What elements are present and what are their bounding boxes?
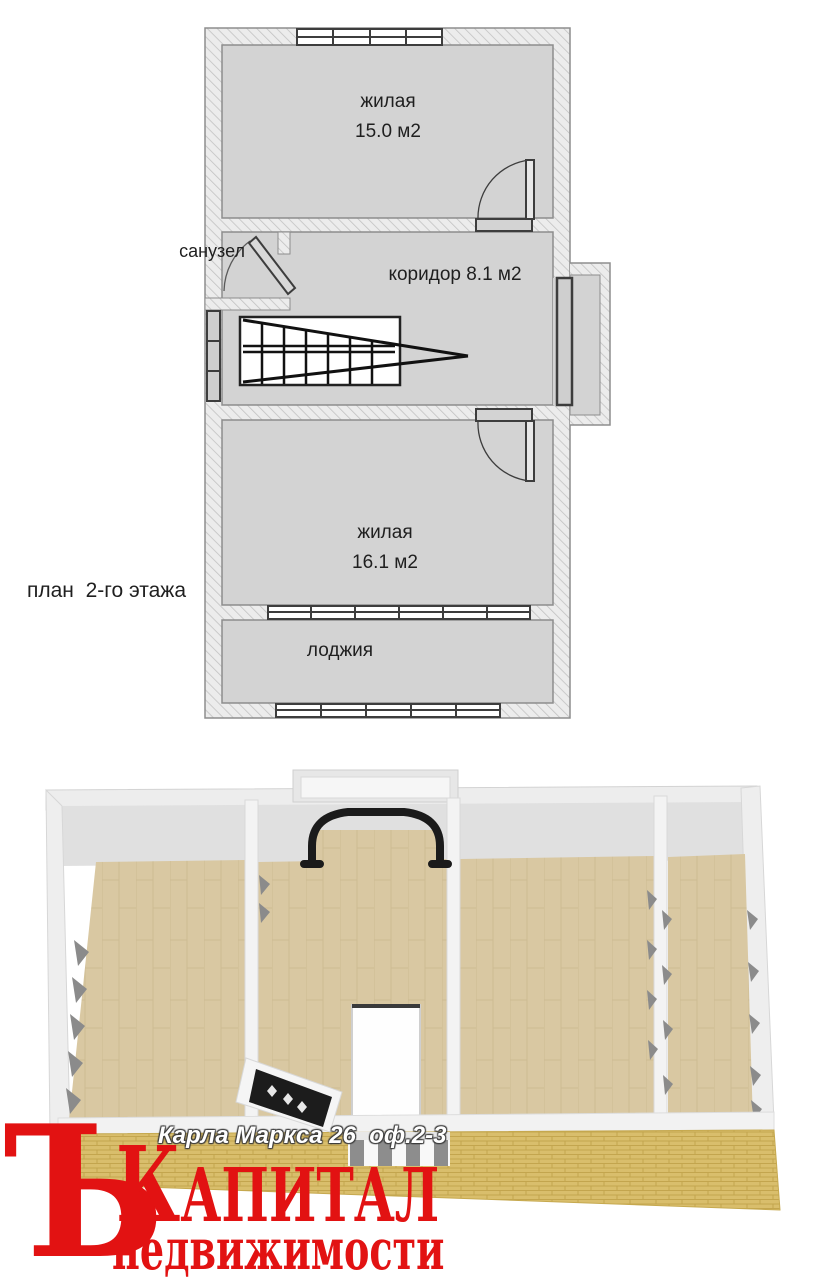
window-loggia-bottom xyxy=(276,704,500,717)
bathroom-label: санузел xyxy=(179,241,245,261)
loggia-label: лоджия xyxy=(307,640,373,661)
window-corridor-left xyxy=(207,311,220,401)
room-top-area: 15.0 м2 xyxy=(355,121,421,142)
window-top xyxy=(297,29,442,45)
room-bottom-area: 16.1 м2 xyxy=(352,552,418,573)
logo-subtitle: недвижимости xyxy=(112,1222,444,1278)
loggia xyxy=(222,620,553,703)
corridor-label: коридор 8.1 м2 xyxy=(388,264,521,285)
bathroom-side-wall-stub xyxy=(278,232,290,254)
stairwell-opening xyxy=(352,1005,420,1129)
floor-plan-2d: жилая 15.0 м2 санузел коридор 8.1 м2 жил… xyxy=(0,0,815,740)
bathroom-bottom-wall xyxy=(205,298,290,310)
screenshot-root: жилая 15.0 м2 санузел коридор 8.1 м2 жил… xyxy=(0,0,815,1280)
entry-protrusion-inner xyxy=(301,777,450,798)
plan-caption: план 2-го этажа xyxy=(27,579,186,602)
floor-room-4 xyxy=(668,854,753,1128)
window-room-bottom-loggia xyxy=(268,606,530,619)
extension-interior xyxy=(570,275,600,415)
watermark-address: Карла Маркса 26 оф.2-3 xyxy=(158,1122,447,1150)
interior-wall-2 xyxy=(447,798,460,1130)
room-top-label: жилая xyxy=(360,91,415,112)
floor-room-3 xyxy=(460,856,660,1130)
room-bottom xyxy=(222,420,553,605)
room-bottom-label: жилая xyxy=(357,522,412,543)
window-extension xyxy=(557,278,572,405)
